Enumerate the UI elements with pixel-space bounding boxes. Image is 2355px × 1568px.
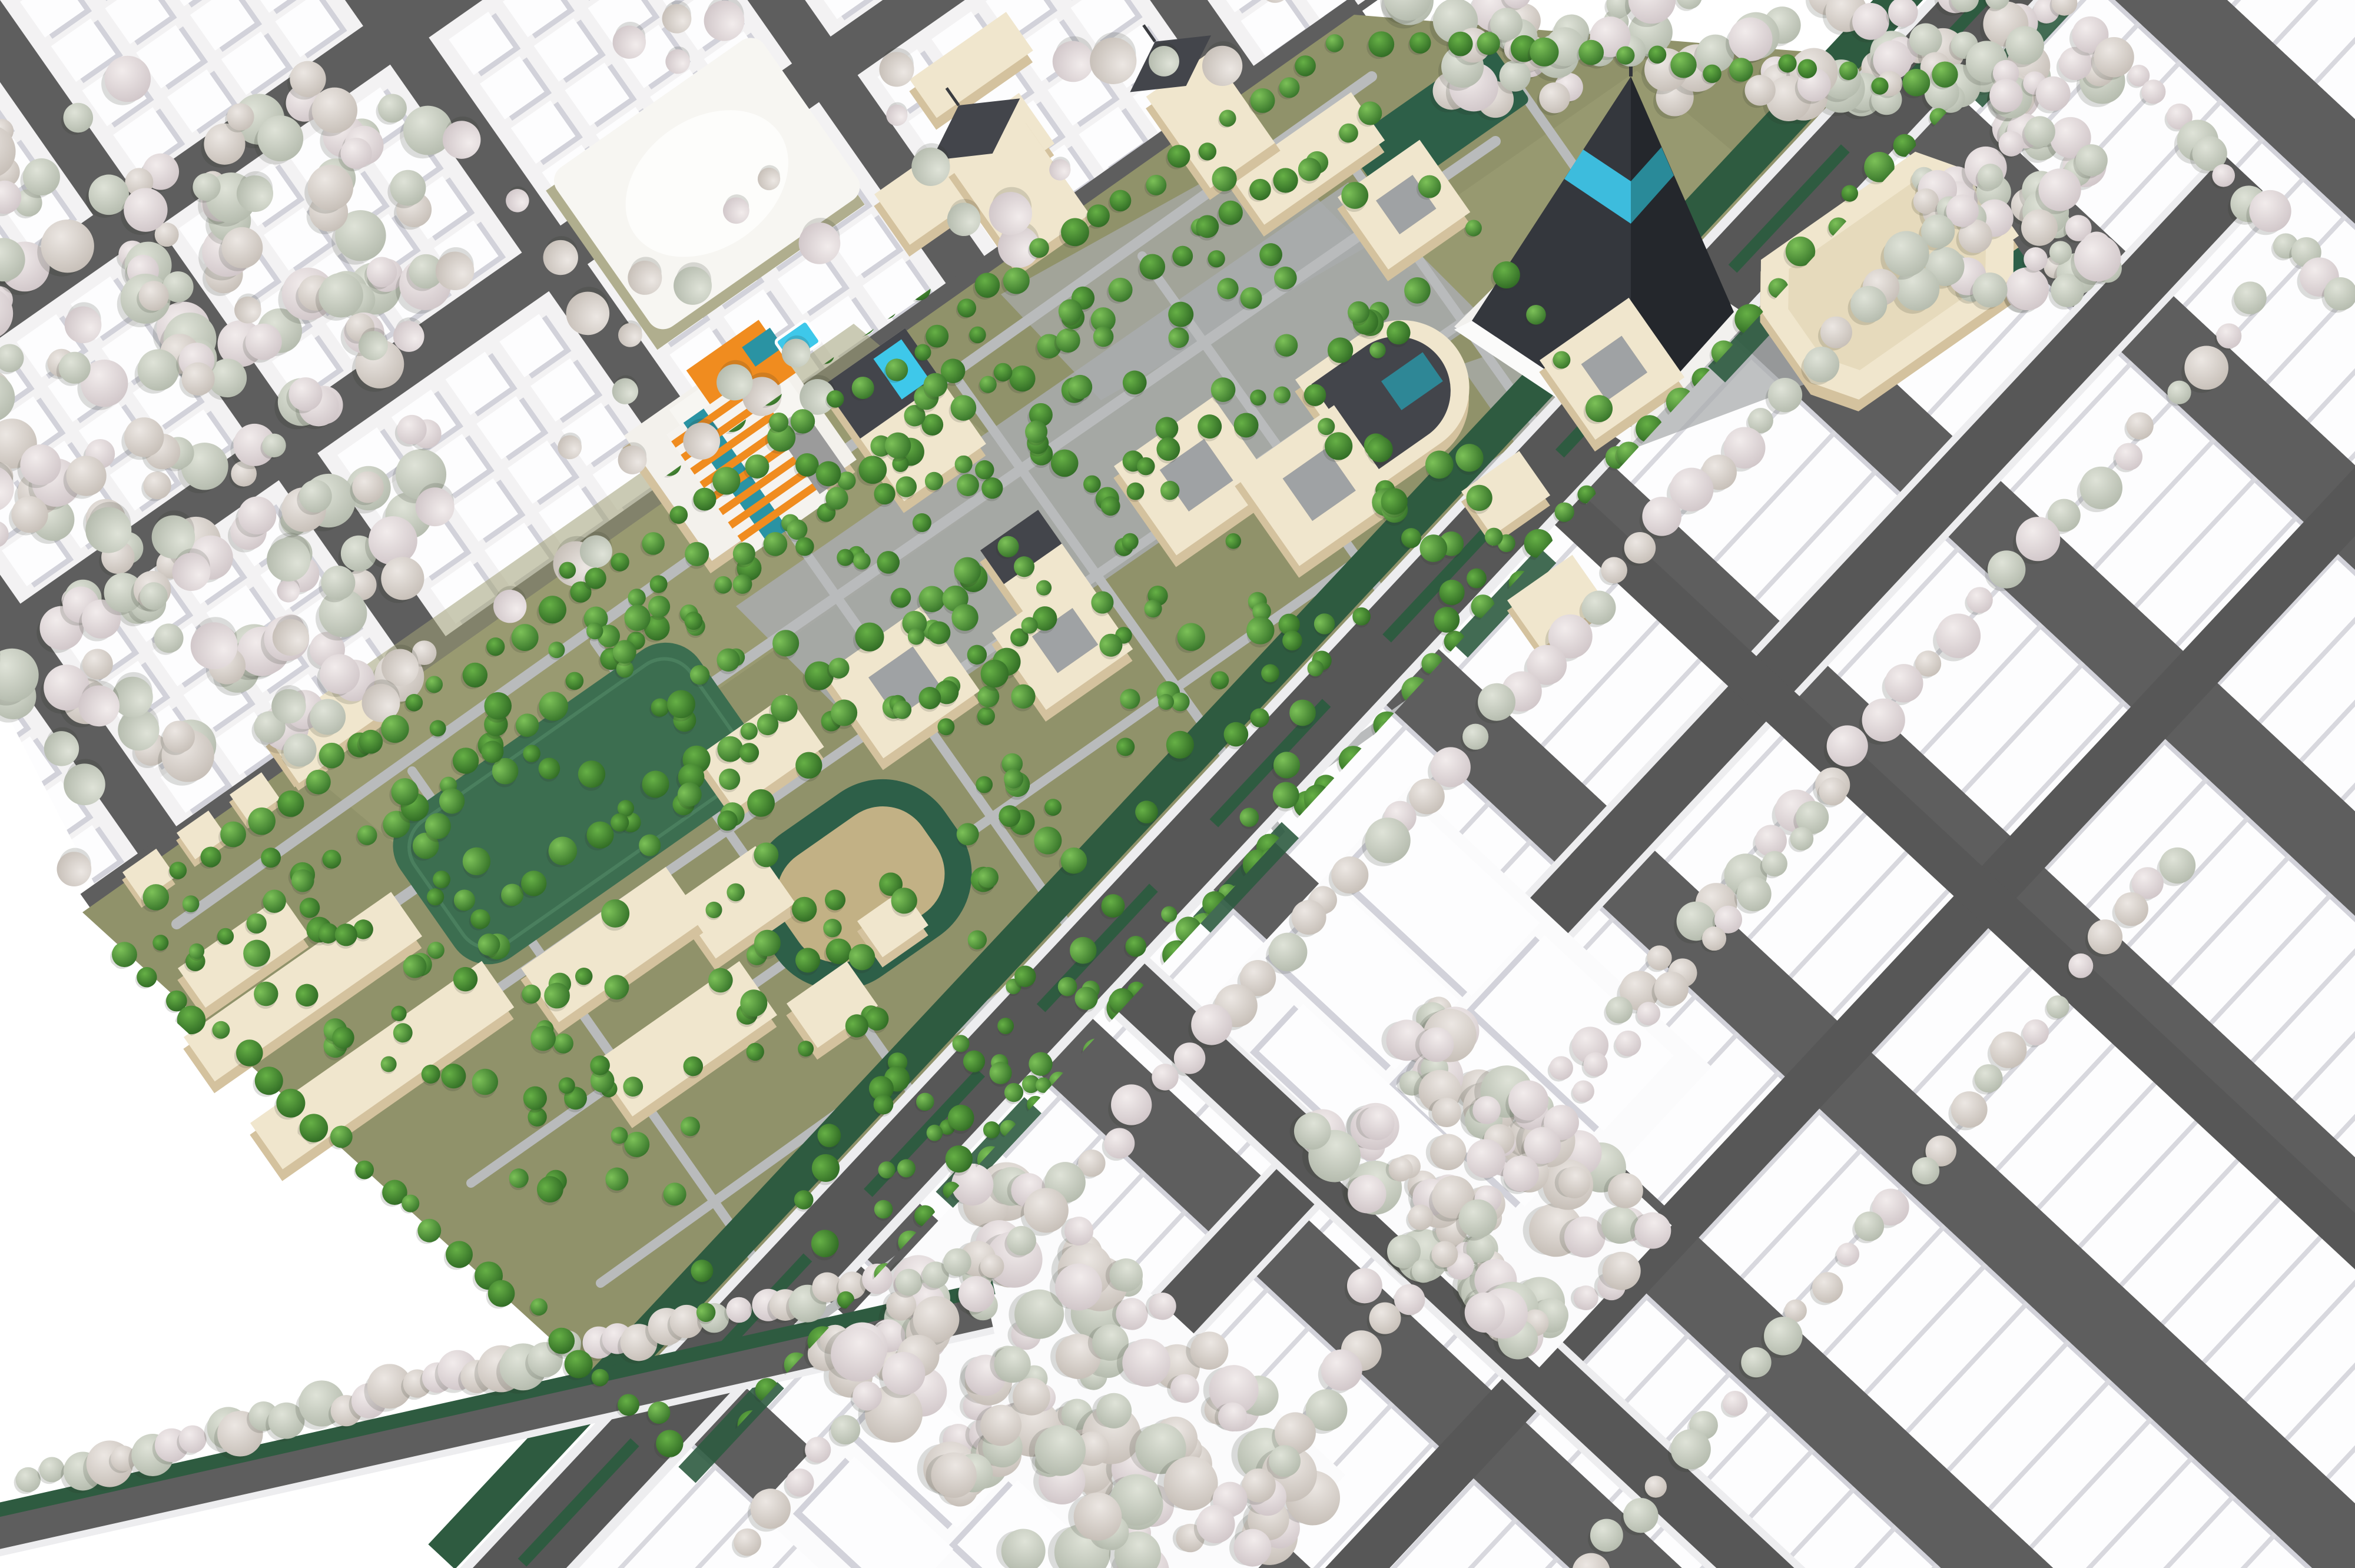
tree (1493, 261, 1520, 288)
tree (1549, 1056, 1573, 1079)
tree (1723, 1391, 1748, 1416)
tree (2167, 381, 2191, 404)
tree (138, 349, 179, 390)
tree (2115, 443, 2142, 471)
tree (1850, 286, 1887, 323)
tree (1326, 34, 1344, 52)
tree (355, 1161, 374, 1180)
tree (754, 842, 778, 867)
tree (2234, 281, 2267, 314)
campus-masterplan-aerial-render (0, 0, 2355, 1568)
tree (2016, 517, 2060, 561)
tree (1347, 1268, 1382, 1303)
tree (951, 395, 977, 421)
tree (11, 496, 48, 533)
tree (1369, 1303, 1401, 1334)
tree (1729, 18, 1772, 61)
tree (693, 488, 716, 511)
tree (1292, 900, 1326, 935)
tree (958, 1276, 994, 1312)
tree (1478, 683, 1515, 721)
tree (1269, 933, 1308, 972)
tree (825, 487, 848, 509)
tree (1671, 1429, 1711, 1469)
tree (1250, 708, 1269, 727)
tree (715, 576, 732, 594)
tree (1647, 945, 1671, 970)
tree (378, 94, 407, 122)
tree (1578, 40, 1604, 65)
tree (20, 444, 61, 485)
tree (2212, 164, 2235, 187)
tree (2006, 267, 2049, 310)
tree (1279, 77, 1299, 98)
tree (397, 415, 426, 444)
tree (2038, 168, 2081, 211)
tree (227, 103, 254, 130)
tree (1331, 856, 1368, 893)
tree (516, 713, 539, 737)
tree (154, 623, 184, 653)
tree (1191, 1004, 1232, 1045)
tree (391, 778, 418, 805)
tree (139, 281, 169, 311)
tree (1462, 724, 1488, 750)
tree (276, 1089, 305, 1118)
tree (137, 967, 157, 987)
tree (521, 871, 546, 896)
tree (1368, 31, 1394, 57)
tree (427, 942, 445, 959)
tree (1790, 827, 1814, 851)
tree (530, 1298, 548, 1315)
tree (2160, 848, 2195, 883)
tree (263, 890, 286, 913)
tree (1737, 877, 1772, 912)
tree (1909, 24, 1942, 57)
tree (312, 88, 357, 133)
tree (1912, 1157, 1939, 1184)
tree (791, 409, 815, 433)
tree (1146, 175, 1166, 195)
tree (1304, 384, 1326, 406)
tree (618, 1394, 639, 1416)
tree (559, 562, 576, 579)
tree (1654, 972, 1689, 1006)
tree (1408, 1205, 1433, 1230)
tree (1295, 55, 1316, 77)
tree (565, 1350, 593, 1378)
tree (290, 61, 326, 97)
tree (1418, 175, 1441, 198)
tree (997, 536, 1019, 557)
tree (1966, 587, 1992, 613)
tree (1990, 1032, 2026, 1068)
tree (367, 257, 397, 288)
tree (1819, 778, 1847, 806)
tree (248, 808, 276, 835)
tree (1670, 52, 1696, 78)
tree (322, 850, 341, 869)
tree (1839, 61, 1858, 80)
tree (310, 699, 346, 735)
tree (170, 862, 187, 879)
tree (792, 897, 817, 922)
tree (566, 672, 584, 690)
tree (648, 1401, 670, 1424)
tree (1111, 1084, 1152, 1125)
tree (1467, 1139, 1505, 1178)
tree (2024, 116, 2055, 147)
tree (359, 730, 383, 754)
tree (143, 471, 171, 499)
tree (2115, 892, 2148, 926)
tree (592, 1369, 609, 1386)
tree (255, 1067, 283, 1095)
tree (642, 532, 665, 555)
tree (548, 1328, 575, 1354)
tree (539, 692, 568, 721)
tree (283, 733, 316, 766)
tree (831, 1415, 860, 1444)
tree (306, 770, 331, 795)
tree (1431, 747, 1471, 787)
tree (1051, 450, 1079, 477)
tree (140, 582, 168, 610)
tree (220, 822, 246, 848)
tree (1798, 59, 1817, 78)
tree (827, 390, 844, 408)
tree (1199, 142, 1216, 160)
tree (918, 586, 945, 612)
tree (1648, 46, 1667, 64)
tree (369, 516, 417, 565)
tree (1729, 58, 1753, 82)
tree (1885, 664, 1923, 702)
tree (1056, 328, 1080, 353)
tree (1409, 779, 1445, 815)
tree (1273, 752, 1300, 778)
tree (1249, 179, 1271, 200)
tree (553, 1034, 573, 1054)
tree (1762, 851, 1787, 876)
tree (1624, 532, 1656, 564)
tree (1500, 60, 1531, 91)
tree (2216, 323, 2241, 348)
tree (1871, 78, 1888, 95)
tree (624, 1132, 649, 1157)
tree (105, 56, 151, 102)
tree (1275, 334, 1298, 357)
tree (1448, 32, 1473, 57)
tree (1539, 82, 1570, 113)
tree (2024, 247, 2048, 271)
tree (1409, 32, 1431, 54)
tree (1601, 557, 1627, 583)
tree (1109, 278, 1133, 302)
tree (381, 715, 409, 743)
tree (957, 298, 976, 317)
tree (2046, 995, 2069, 1018)
tree (977, 707, 995, 725)
tree (2141, 79, 2165, 104)
tree (406, 694, 423, 712)
tree (926, 325, 948, 348)
tree (1365, 818, 1411, 863)
tree (1855, 1211, 1884, 1241)
tree (1219, 110, 1236, 127)
tree (402, 1195, 419, 1212)
tree (1061, 218, 1089, 247)
tree (463, 663, 487, 687)
tree (488, 1280, 515, 1307)
tree (319, 743, 344, 768)
tree (2075, 144, 2107, 176)
tree (2094, 37, 2134, 77)
tree (39, 1457, 65, 1482)
tree (585, 567, 606, 589)
tree (1820, 317, 1852, 348)
tree (59, 352, 91, 384)
tree (664, 1182, 686, 1205)
tree (712, 467, 740, 494)
tree (1989, 79, 2023, 112)
tree (1642, 497, 1681, 536)
tree (1061, 848, 1087, 874)
tree (858, 456, 887, 484)
tree (1936, 613, 1981, 658)
tree (1999, 131, 2024, 157)
tree (340, 138, 372, 169)
tree (586, 822, 613, 849)
tree (1196, 1505, 1235, 1543)
tree (124, 188, 167, 231)
tree (1508, 1081, 1548, 1121)
tree (1768, 378, 1802, 412)
tree (1029, 238, 1049, 258)
tree (1007, 1226, 1036, 1255)
tree (1637, 1002, 1660, 1025)
tree (549, 836, 578, 865)
tree (1702, 926, 1726, 951)
tree (786, 1469, 814, 1497)
tree (1172, 246, 1193, 267)
tree (1358, 101, 1382, 125)
tree (1623, 1498, 1658, 1533)
tree (2021, 210, 2058, 246)
tree (262, 434, 286, 457)
tree (1140, 254, 1165, 280)
tree (1273, 168, 1298, 192)
tree (826, 938, 852, 964)
tree (980, 1254, 1004, 1278)
tree (277, 790, 304, 817)
tree (1703, 65, 1721, 83)
tree (975, 273, 1000, 298)
tree (2080, 467, 2122, 509)
tree (2249, 190, 2291, 232)
tree (124, 417, 164, 457)
tree (66, 456, 106, 496)
tree (162, 721, 195, 753)
tree (1616, 1031, 1641, 1057)
tree (1240, 287, 1262, 309)
tree (512, 624, 539, 651)
tree (1167, 145, 1190, 168)
tree (179, 1426, 207, 1453)
tree (1606, 996, 1633, 1024)
tree (426, 676, 443, 693)
tree (193, 173, 220, 201)
tree (726, 1297, 752, 1323)
tree (1554, 502, 1574, 521)
tree (1339, 124, 1358, 143)
tree (611, 553, 629, 572)
tree (1913, 188, 1939, 214)
tree (299, 480, 332, 513)
tree (181, 363, 214, 396)
tree (1978, 164, 2004, 190)
tree (885, 358, 908, 381)
tree (2074, 235, 2121, 282)
tree (1852, 3, 1889, 40)
tree (454, 889, 475, 911)
tree (1321, 1350, 1362, 1391)
tree (453, 748, 479, 773)
tree (288, 377, 322, 411)
tree (320, 654, 360, 694)
tree (1903, 69, 1931, 97)
tree (1104, 1128, 1135, 1158)
tree (381, 557, 424, 600)
tree (1174, 1042, 1206, 1074)
tree (1152, 1064, 1178, 1090)
tree (2184, 346, 2228, 390)
tree (1009, 366, 1035, 391)
tree (2006, 26, 2044, 64)
tree (2088, 919, 2122, 954)
tree (16, 1467, 41, 1492)
tree (1211, 671, 1229, 689)
tree (82, 649, 113, 679)
tree (417, 1219, 441, 1243)
tree (201, 846, 221, 867)
tree (221, 227, 263, 268)
tree (882, 1352, 925, 1395)
tree (247, 913, 267, 934)
tree (1044, 799, 1062, 816)
tree (1125, 936, 1146, 957)
tree (1582, 591, 1616, 625)
tree (1177, 623, 1205, 651)
tree (1583, 1052, 1607, 1077)
tree (795, 453, 819, 477)
tree (891, 588, 911, 608)
tree (319, 273, 363, 318)
tree (1972, 273, 2007, 307)
tree (651, 699, 669, 717)
tree (212, 1021, 230, 1039)
tree (805, 1437, 831, 1463)
tree (1526, 305, 1546, 325)
tree (2022, 1019, 2049, 1046)
tree (943, 1248, 971, 1276)
tree (994, 363, 1013, 382)
tree (63, 103, 93, 133)
tree (321, 566, 355, 600)
tree (1269, 1445, 1301, 1477)
tree (1553, 351, 1571, 369)
tree (828, 658, 849, 679)
tree (470, 909, 490, 929)
tree (1208, 250, 1225, 267)
tree (1458, 1200, 1497, 1238)
tree (1412, 1259, 1436, 1283)
tree (352, 471, 384, 503)
tree (1862, 699, 1905, 742)
tree (539, 596, 566, 623)
tree (238, 496, 277, 534)
tree (1101, 894, 1125, 918)
tree (1590, 1519, 1623, 1552)
tree (1003, 267, 1030, 294)
tree (23, 158, 60, 195)
tree (236, 1039, 263, 1067)
tree (1251, 88, 1275, 113)
tree (769, 413, 788, 432)
tree (1477, 32, 1500, 55)
tree (486, 637, 505, 656)
tree (642, 770, 669, 798)
tree (1024, 1188, 1069, 1233)
tree (246, 324, 282, 360)
tree (1465, 220, 1482, 236)
tree (2036, 77, 2071, 111)
tree (112, 942, 137, 967)
tree (1827, 725, 1868, 766)
tree (855, 623, 884, 652)
tree (1975, 1064, 2003, 1092)
tree (300, 1114, 328, 1142)
tree (1530, 38, 1558, 67)
tree (1779, 54, 1797, 72)
tree (745, 454, 769, 479)
tree (1616, 46, 1634, 65)
tree (330, 1125, 353, 1148)
tree (308, 165, 353, 210)
tree (1744, 75, 1775, 105)
tree (41, 220, 94, 273)
tree (1932, 61, 1958, 87)
tree (1439, 580, 1465, 605)
tree (257, 115, 303, 161)
tree (741, 723, 758, 740)
tree (1431, 1241, 1458, 1268)
tree (1812, 1272, 1843, 1303)
tree (1645, 1476, 1667, 1497)
tree (1988, 550, 2026, 589)
tree (1951, 1091, 1988, 1128)
tree (2127, 412, 2154, 439)
tree (522, 985, 540, 1004)
tree (1219, 201, 1243, 225)
tree (853, 1381, 882, 1411)
tree (1401, 528, 1421, 548)
tree (969, 327, 986, 344)
tree (2068, 954, 2093, 978)
tree (734, 1529, 761, 1556)
tree (1573, 1081, 1594, 1102)
